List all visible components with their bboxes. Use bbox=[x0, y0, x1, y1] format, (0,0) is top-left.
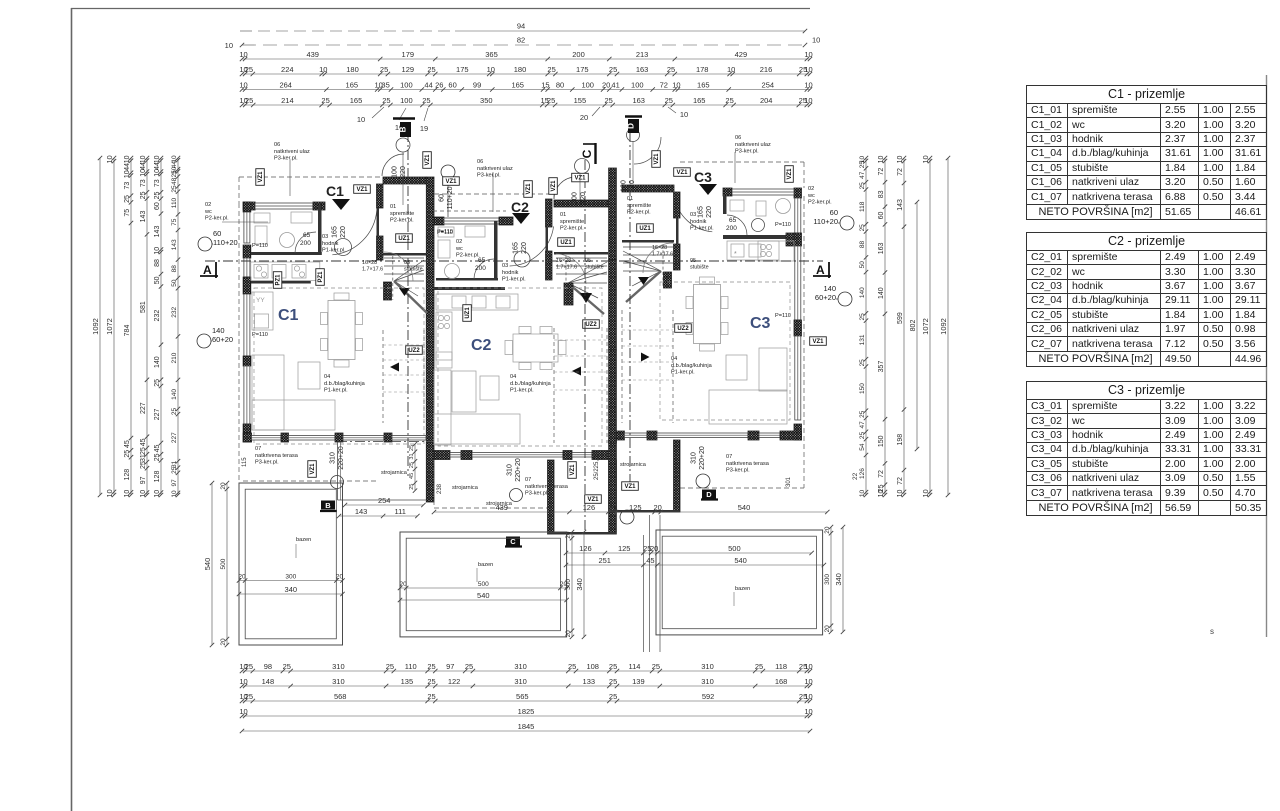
svg-text:125: 125 bbox=[629, 503, 642, 512]
svg-text:83: 83 bbox=[878, 190, 885, 198]
svg-text:60: 60 bbox=[154, 202, 161, 210]
svg-text:25: 25 bbox=[245, 65, 253, 74]
svg-text:20: 20 bbox=[602, 80, 610, 89]
svg-text:25: 25 bbox=[427, 65, 435, 74]
svg-text:227: 227 bbox=[140, 402, 147, 414]
svg-text:YY: YY bbox=[256, 297, 265, 304]
svg-text:60: 60 bbox=[439, 194, 446, 202]
svg-text:25: 25 bbox=[154, 453, 161, 461]
svg-text:65: 65 bbox=[729, 217, 737, 224]
svg-text:strojarnica: strojarnica bbox=[620, 462, 647, 468]
svg-text:1072: 1072 bbox=[105, 318, 114, 335]
svg-text:10: 10 bbox=[921, 155, 930, 163]
svg-text:50: 50 bbox=[859, 261, 866, 269]
svg-text:bazen: bazen bbox=[478, 562, 493, 568]
svg-text:48: 48 bbox=[171, 177, 178, 185]
svg-text:10: 10 bbox=[154, 155, 161, 163]
svg-text:45: 45 bbox=[140, 438, 147, 446]
svg-text:165: 165 bbox=[693, 96, 706, 105]
svg-text:178: 178 bbox=[696, 65, 709, 74]
svg-text:143: 143 bbox=[355, 507, 368, 516]
svg-text:198: 198 bbox=[897, 434, 904, 446]
svg-text:VZ1: VZ1 bbox=[445, 179, 457, 185]
svg-text:540: 540 bbox=[477, 591, 490, 600]
svg-text:75: 75 bbox=[124, 209, 131, 217]
svg-text:C: C bbox=[580, 149, 594, 158]
svg-text:60: 60 bbox=[213, 229, 221, 238]
svg-text:20: 20 bbox=[220, 482, 227, 490]
svg-text:163: 163 bbox=[878, 242, 885, 254]
svg-text:A: A bbox=[203, 263, 212, 277]
svg-text:25: 25 bbox=[382, 96, 390, 105]
svg-text:10: 10 bbox=[154, 169, 161, 177]
svg-text:25: 25 bbox=[859, 410, 866, 418]
svg-text:73: 73 bbox=[154, 179, 161, 187]
svg-text:02wcP2-ker.pl.: 02wcP2-ker.pl. bbox=[204, 202, 229, 222]
svg-text:10: 10 bbox=[154, 247, 161, 255]
svg-text:204: 204 bbox=[760, 96, 773, 105]
svg-text:310: 310 bbox=[332, 662, 345, 671]
svg-text:25: 25 bbox=[755, 662, 763, 671]
svg-text:25: 25 bbox=[140, 461, 147, 469]
svg-text:02wcP2-ker.pl.: 02wcP2-ker.pl. bbox=[807, 186, 832, 206]
svg-text:500: 500 bbox=[220, 558, 227, 569]
svg-text:25: 25 bbox=[154, 192, 161, 200]
svg-text:238: 238 bbox=[437, 483, 443, 494]
svg-text:25: 25 bbox=[283, 662, 291, 671]
svg-text:20: 20 bbox=[220, 638, 227, 646]
svg-text:592: 592 bbox=[702, 692, 715, 701]
svg-text:10: 10 bbox=[921, 489, 930, 497]
svg-text:C1: C1 bbox=[326, 183, 344, 199]
svg-text:VZ1: VZ1 bbox=[654, 153, 660, 165]
svg-text:P=110: P=110 bbox=[775, 222, 791, 228]
svg-text:72: 72 bbox=[878, 470, 885, 478]
svg-text:133: 133 bbox=[583, 677, 596, 686]
svg-text:88: 88 bbox=[859, 241, 866, 249]
svg-text:310: 310 bbox=[514, 677, 527, 686]
svg-text:300: 300 bbox=[824, 574, 831, 585]
svg-text:110+20: 110+20 bbox=[213, 238, 238, 247]
svg-text:126: 126 bbox=[583, 503, 596, 512]
svg-text:82: 82 bbox=[517, 36, 525, 45]
svg-text:10: 10 bbox=[897, 156, 904, 164]
svg-text:180: 180 bbox=[514, 65, 527, 74]
svg-text:232: 232 bbox=[154, 310, 161, 322]
svg-text:227: 227 bbox=[154, 408, 161, 420]
svg-text:25: 25 bbox=[409, 445, 415, 451]
svg-text:06natkriveni ulazP3-ker.pl.: 06natkriveni ulazP3-ker.pl. bbox=[735, 135, 771, 155]
svg-text:10: 10 bbox=[680, 110, 688, 119]
svg-text:06natkriveni ulazP3-ker.pl.: 06natkriveni ulazP3-ker.pl. bbox=[477, 159, 513, 179]
svg-text:540: 540 bbox=[738, 503, 751, 512]
svg-text:220+20: 220+20 bbox=[515, 458, 522, 482]
svg-text:47: 47 bbox=[859, 421, 866, 429]
svg-text:163: 163 bbox=[632, 96, 645, 105]
svg-text:140: 140 bbox=[878, 287, 885, 299]
svg-text:100: 100 bbox=[400, 80, 413, 89]
svg-text:254: 254 bbox=[762, 80, 775, 89]
svg-text:340: 340 bbox=[834, 573, 843, 586]
svg-text:97: 97 bbox=[140, 476, 147, 484]
svg-text:784: 784 bbox=[124, 325, 131, 337]
svg-text:VZ1: VZ1 bbox=[574, 176, 586, 182]
svg-text:114: 114 bbox=[629, 662, 641, 671]
svg-text:25: 25 bbox=[859, 161, 866, 169]
svg-text:10: 10 bbox=[804, 65, 812, 74]
svg-text:60: 60 bbox=[878, 212, 885, 220]
svg-text:25: 25 bbox=[245, 692, 253, 701]
svg-text:310: 310 bbox=[330, 452, 337, 464]
svg-text:143: 143 bbox=[140, 211, 147, 223]
svg-text:140: 140 bbox=[171, 389, 178, 400]
svg-text:310: 310 bbox=[701, 662, 714, 671]
svg-text:05stubište: 05stubište bbox=[690, 258, 709, 271]
svg-text:131: 131 bbox=[859, 334, 866, 345]
svg-text:10: 10 bbox=[124, 490, 131, 498]
svg-text:100: 100 bbox=[621, 180, 628, 192]
svg-text:25: 25 bbox=[422, 96, 430, 105]
svg-text:126: 126 bbox=[859, 468, 866, 479]
svg-text:25: 25 bbox=[124, 195, 131, 203]
svg-text:200: 200 bbox=[572, 50, 585, 59]
svg-text:10: 10 bbox=[804, 80, 812, 89]
svg-text:C1: C1 bbox=[278, 307, 299, 324]
svg-text:25: 25 bbox=[140, 191, 147, 199]
svg-text:365: 365 bbox=[485, 50, 498, 59]
svg-text:VZ1: VZ1 bbox=[425, 154, 431, 166]
svg-text:25: 25 bbox=[859, 313, 866, 321]
svg-text:25: 25 bbox=[427, 677, 435, 686]
svg-text:strojarnica: strojarnica bbox=[452, 485, 479, 491]
svg-text:25: 25 bbox=[859, 359, 866, 367]
svg-text:VZ1: VZ1 bbox=[570, 464, 576, 476]
svg-text:200: 200 bbox=[300, 240, 311, 247]
svg-text:143: 143 bbox=[171, 239, 178, 250]
svg-text:10: 10 bbox=[487, 65, 495, 74]
svg-text:01spremišteP2-ker.pl.: 01spremišteP2-ker.pl. bbox=[390, 204, 414, 224]
svg-text:20: 20 bbox=[580, 113, 588, 122]
svg-text:UZ2: UZ2 bbox=[585, 322, 597, 328]
svg-text:110+20: 110+20 bbox=[813, 217, 838, 226]
svg-text:10: 10 bbox=[225, 41, 233, 50]
svg-text:118: 118 bbox=[775, 662, 787, 671]
svg-text:25: 25 bbox=[665, 96, 673, 105]
svg-text:20: 20 bbox=[336, 573, 344, 580]
svg-text:60+20: 60+20 bbox=[815, 293, 836, 302]
svg-text:25: 25 bbox=[609, 662, 617, 671]
svg-text:165: 165 bbox=[332, 226, 339, 238]
svg-text:264: 264 bbox=[279, 80, 292, 89]
svg-text:C2: C2 bbox=[511, 199, 529, 215]
svg-text:35: 35 bbox=[381, 80, 389, 89]
svg-text:07natkrivena terasaP3-ker.pl.: 07natkrivena terasaP3-ker.pl. bbox=[525, 477, 569, 497]
svg-text:100: 100 bbox=[400, 96, 413, 105]
svg-text:175: 175 bbox=[456, 65, 469, 74]
svg-text:568: 568 bbox=[334, 692, 347, 701]
svg-text:310: 310 bbox=[701, 677, 714, 686]
svg-text:148: 148 bbox=[262, 677, 275, 686]
svg-text:200: 200 bbox=[726, 225, 737, 232]
svg-text:25: 25 bbox=[409, 484, 415, 490]
svg-text:C3: C3 bbox=[750, 315, 771, 332]
svg-text:10: 10 bbox=[812, 36, 820, 45]
svg-text:213: 213 bbox=[636, 50, 649, 59]
svg-text:10: 10 bbox=[804, 677, 812, 686]
svg-text:02wcP2-ker.pl.: 02wcP2-ker.pl. bbox=[455, 239, 480, 259]
svg-text:72: 72 bbox=[878, 168, 885, 176]
svg-text:165: 165 bbox=[511, 80, 524, 89]
svg-text:10: 10 bbox=[124, 170, 131, 178]
svg-text:bazen: bazen bbox=[735, 586, 750, 592]
svg-text:165: 165 bbox=[350, 96, 363, 105]
svg-text:VZ1: VZ1 bbox=[812, 339, 824, 345]
svg-text:25: 25 bbox=[859, 224, 866, 232]
svg-text:VZ1: VZ1 bbox=[551, 180, 557, 192]
svg-text:VZ1: VZ1 bbox=[526, 183, 532, 195]
svg-text:500: 500 bbox=[728, 544, 741, 553]
svg-text:10: 10 bbox=[171, 490, 178, 498]
svg-text:216: 216 bbox=[760, 65, 773, 74]
svg-text:20: 20 bbox=[565, 531, 572, 539]
svg-text:140: 140 bbox=[154, 356, 161, 368]
svg-text:10: 10 bbox=[804, 50, 812, 59]
svg-text:60: 60 bbox=[448, 80, 456, 89]
svg-text:129: 129 bbox=[402, 65, 415, 74]
svg-text:06natkriveni ulazP3-ker.pl.: 06natkriveni ulazP3-ker.pl. bbox=[274, 142, 310, 162]
svg-text:357: 357 bbox=[878, 361, 885, 373]
svg-text:110+20: 110+20 bbox=[447, 186, 454, 209]
svg-text:220+20: 220+20 bbox=[699, 446, 706, 470]
svg-text:04d.b./blag/kuhinjaP1-ker.pl.: 04d.b./blag/kuhinjaP1-ker.pl. bbox=[510, 374, 552, 394]
svg-text:25: 25 bbox=[667, 65, 675, 74]
svg-text:220: 220 bbox=[340, 226, 347, 238]
svg-text:110: 110 bbox=[405, 662, 417, 671]
svg-text:165: 165 bbox=[697, 80, 710, 89]
svg-text:10: 10 bbox=[878, 490, 885, 498]
svg-text:D: D bbox=[706, 490, 712, 499]
svg-text:439: 439 bbox=[306, 50, 319, 59]
svg-text:1845: 1845 bbox=[518, 722, 535, 731]
svg-text:15: 15 bbox=[541, 80, 549, 89]
svg-text:B: B bbox=[399, 126, 408, 132]
svg-text:UZ2: UZ2 bbox=[677, 326, 689, 332]
svg-text:10: 10 bbox=[140, 169, 147, 177]
svg-text:bazen: bazen bbox=[296, 537, 311, 543]
svg-text:05stubište: 05stubište bbox=[585, 258, 604, 271]
svg-text:301: 301 bbox=[786, 476, 792, 487]
svg-text:220: 220 bbox=[521, 242, 528, 254]
svg-text:P=110: P=110 bbox=[775, 313, 791, 319]
svg-text:1092: 1092 bbox=[91, 318, 100, 335]
svg-text:25: 25 bbox=[609, 65, 617, 74]
svg-text:802: 802 bbox=[910, 320, 917, 332]
svg-text:25: 25 bbox=[609, 692, 617, 701]
svg-text:72: 72 bbox=[897, 477, 904, 485]
svg-text:140: 140 bbox=[823, 284, 836, 293]
svg-text:97: 97 bbox=[446, 662, 454, 671]
svg-text:25: 25 bbox=[859, 432, 866, 440]
svg-text:10: 10 bbox=[140, 490, 147, 498]
svg-text:254: 254 bbox=[378, 496, 391, 505]
svg-text:224: 224 bbox=[281, 65, 294, 74]
svg-text:04d.b./blag/kuhinjaP1-ker.pl.: 04d.b./blag/kuhinjaP1-ker.pl. bbox=[324, 374, 366, 394]
svg-text:22: 22 bbox=[852, 472, 859, 480]
svg-text:1825: 1825 bbox=[518, 707, 535, 716]
svg-text:25: 25 bbox=[409, 462, 415, 468]
svg-text:PZ1: PZ1 bbox=[318, 271, 324, 283]
svg-text:251: 251 bbox=[598, 556, 611, 565]
svg-text:25: 25 bbox=[171, 408, 178, 416]
svg-text:97: 97 bbox=[171, 479, 178, 487]
svg-text:25: 25 bbox=[547, 96, 555, 105]
svg-text:16×281.7×17.6: 16×281.7×17.6 bbox=[362, 260, 383, 273]
svg-text:44: 44 bbox=[124, 163, 131, 171]
svg-text:100: 100 bbox=[631, 80, 644, 89]
svg-text:VZ1: VZ1 bbox=[676, 170, 688, 176]
svg-text:310: 310 bbox=[514, 662, 527, 671]
svg-text:118: 118 bbox=[859, 201, 866, 212]
svg-text:10: 10 bbox=[804, 96, 812, 105]
svg-text:VZ1: VZ1 bbox=[624, 484, 636, 490]
svg-text:122: 122 bbox=[448, 677, 461, 686]
svg-text:s: s bbox=[1210, 627, 1214, 636]
svg-text:19: 19 bbox=[420, 124, 428, 133]
svg-text:41: 41 bbox=[611, 80, 619, 89]
svg-text:220: 220 bbox=[706, 206, 713, 218]
svg-text:111: 111 bbox=[394, 507, 405, 516]
svg-text:10: 10 bbox=[319, 65, 327, 74]
svg-text:20: 20 bbox=[399, 581, 407, 588]
svg-text:60: 60 bbox=[830, 208, 838, 217]
svg-text:500: 500 bbox=[478, 581, 489, 588]
svg-text:45: 45 bbox=[646, 556, 654, 565]
svg-text:300: 300 bbox=[565, 579, 572, 590]
svg-text:44: 44 bbox=[424, 80, 432, 89]
svg-text:25: 25 bbox=[859, 182, 866, 190]
svg-text:232: 232 bbox=[171, 306, 178, 317]
svg-text:04d.b./blag/kuhinjaP1-ker.pl.: 04d.b./blag/kuhinjaP1-ker.pl. bbox=[671, 356, 713, 376]
svg-text:300: 300 bbox=[285, 573, 296, 580]
svg-text:VZ1: VZ1 bbox=[356, 187, 368, 193]
svg-text:10: 10 bbox=[804, 707, 812, 716]
svg-text:128: 128 bbox=[154, 471, 161, 483]
svg-text:439: 439 bbox=[495, 503, 508, 512]
svg-text:310: 310 bbox=[507, 464, 514, 476]
svg-text:143: 143 bbox=[154, 226, 161, 238]
svg-text:175: 175 bbox=[576, 65, 589, 74]
svg-text:D: D bbox=[627, 123, 636, 129]
svg-text:25: 25 bbox=[386, 662, 394, 671]
svg-text:1092: 1092 bbox=[939, 318, 948, 335]
svg-text:599: 599 bbox=[897, 312, 904, 324]
svg-text:25: 25 bbox=[605, 96, 613, 105]
svg-text:25/225, 54: 25/225, 54 bbox=[594, 451, 600, 480]
svg-text:139: 139 bbox=[632, 677, 645, 686]
svg-text:72: 72 bbox=[897, 168, 904, 176]
svg-text:strojarnica: strojarnica bbox=[381, 470, 408, 476]
svg-text:UZ1: UZ1 bbox=[639, 226, 651, 232]
svg-text:100: 100 bbox=[581, 80, 594, 89]
svg-text:A: A bbox=[816, 263, 825, 277]
svg-text:10: 10 bbox=[154, 490, 161, 498]
svg-text:50: 50 bbox=[171, 279, 178, 287]
svg-text:163: 163 bbox=[636, 65, 649, 74]
svg-text:25: 25 bbox=[321, 96, 329, 105]
svg-text:100: 100 bbox=[392, 166, 399, 178]
svg-text:340: 340 bbox=[285, 585, 298, 594]
svg-text:05stubište: 05stubište bbox=[404, 260, 423, 273]
svg-text:45: 45 bbox=[154, 445, 161, 453]
svg-text:108: 108 bbox=[586, 662, 599, 671]
svg-text:20: 20 bbox=[654, 503, 662, 512]
svg-text:75: 75 bbox=[171, 218, 178, 226]
svg-text:01spremišteP2-ker.pl.: 01spremišteP2-ker.pl. bbox=[627, 196, 651, 216]
svg-text:25: 25 bbox=[547, 65, 555, 74]
svg-text:UZ1: UZ1 bbox=[398, 236, 410, 242]
svg-text:100: 100 bbox=[572, 192, 579, 204]
svg-text:155: 155 bbox=[574, 96, 587, 105]
svg-text:VZ1: VZ1 bbox=[787, 168, 793, 180]
svg-text:20: 20 bbox=[824, 526, 831, 534]
svg-text:10: 10 bbox=[897, 490, 904, 498]
svg-text:P=110: P=110 bbox=[437, 230, 453, 236]
svg-text:10: 10 bbox=[804, 662, 812, 671]
svg-text:UZ2: UZ2 bbox=[408, 348, 420, 354]
svg-text:10: 10 bbox=[727, 65, 735, 74]
svg-text:VZ1: VZ1 bbox=[310, 463, 316, 475]
svg-text:214: 214 bbox=[281, 96, 294, 105]
svg-text:VZ1: VZ1 bbox=[258, 171, 264, 183]
svg-text:350: 350 bbox=[480, 96, 493, 105]
svg-text:31: 31 bbox=[140, 454, 147, 462]
svg-text:25: 25 bbox=[608, 503, 616, 512]
svg-text:20: 20 bbox=[824, 625, 831, 633]
svg-text:25: 25 bbox=[124, 450, 131, 458]
svg-text:73: 73 bbox=[140, 179, 147, 187]
svg-text:94: 94 bbox=[517, 22, 525, 31]
svg-text:126: 126 bbox=[579, 544, 592, 553]
svg-text:20: 20 bbox=[565, 630, 572, 638]
svg-text:540: 540 bbox=[734, 556, 747, 565]
svg-text:150: 150 bbox=[859, 383, 866, 394]
svg-text:25: 25 bbox=[609, 677, 617, 686]
svg-text:220: 220 bbox=[400, 166, 407, 178]
svg-text:1072: 1072 bbox=[921, 318, 930, 335]
svg-text:165: 165 bbox=[346, 80, 359, 89]
svg-text:565: 565 bbox=[516, 692, 529, 701]
svg-text:220+20: 220+20 bbox=[338, 446, 345, 470]
svg-text:180: 180 bbox=[346, 65, 359, 74]
svg-text:98: 98 bbox=[264, 662, 272, 671]
svg-text:110: 110 bbox=[171, 197, 178, 208]
svg-text:310: 310 bbox=[691, 452, 698, 464]
svg-text:540: 540 bbox=[203, 558, 212, 571]
svg-text:10: 10 bbox=[878, 156, 885, 164]
svg-text:581: 581 bbox=[140, 301, 147, 313]
svg-text:UZ1: UZ1 bbox=[560, 240, 572, 246]
svg-text:*: * bbox=[734, 251, 737, 258]
svg-text:150: 150 bbox=[878, 435, 885, 447]
svg-text:B: B bbox=[325, 501, 331, 510]
svg-text:10: 10 bbox=[804, 692, 812, 701]
svg-text:135: 135 bbox=[401, 677, 414, 686]
svg-text:128: 128 bbox=[124, 469, 131, 481]
svg-text:310: 310 bbox=[332, 677, 345, 686]
svg-text:20: 20 bbox=[650, 544, 658, 553]
svg-text:25: 25 bbox=[154, 379, 161, 387]
svg-text:25: 25 bbox=[171, 170, 178, 178]
